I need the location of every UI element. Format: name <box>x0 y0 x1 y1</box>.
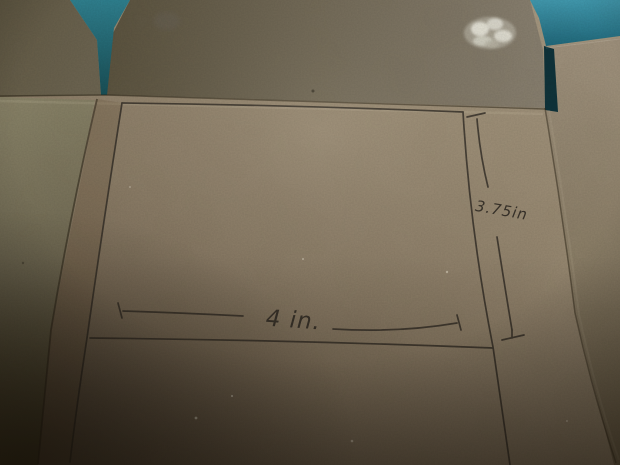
photo-stage: 4 in. 3.75in <box>0 0 620 465</box>
vignette <box>0 0 620 465</box>
cardboard-photo: 4 in. 3.75in <box>0 0 620 465</box>
